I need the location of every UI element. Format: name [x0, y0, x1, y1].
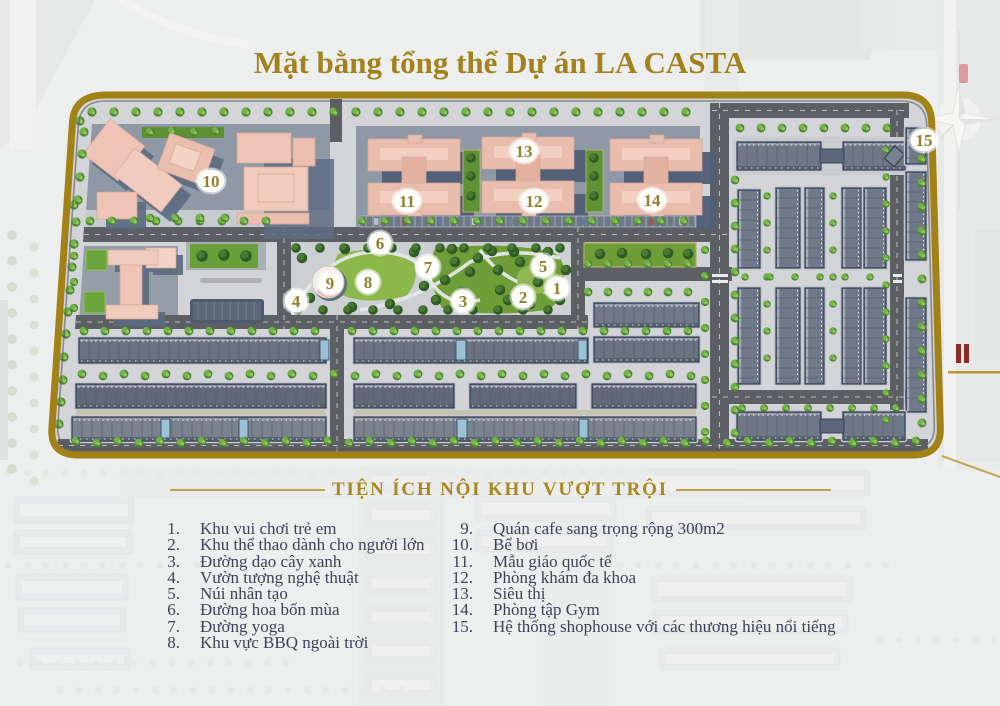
svg-text:15: 15: [916, 131, 933, 150]
svg-text:11: 11: [399, 192, 415, 211]
svg-text:9: 9: [326, 274, 335, 293]
svg-text:10: 10: [203, 172, 220, 191]
svg-text:7: 7: [424, 258, 433, 277]
svg-text:1: 1: [553, 279, 562, 298]
svg-text:2: 2: [519, 288, 528, 307]
svg-text:4: 4: [292, 292, 301, 311]
svg-text:5: 5: [539, 257, 548, 276]
svg-text:6: 6: [376, 234, 385, 253]
svg-text:8: 8: [364, 273, 373, 292]
svg-text:14: 14: [644, 191, 662, 210]
svg-text:12: 12: [526, 192, 543, 211]
svg-text:13: 13: [516, 142, 533, 161]
svg-text:3: 3: [459, 292, 468, 311]
